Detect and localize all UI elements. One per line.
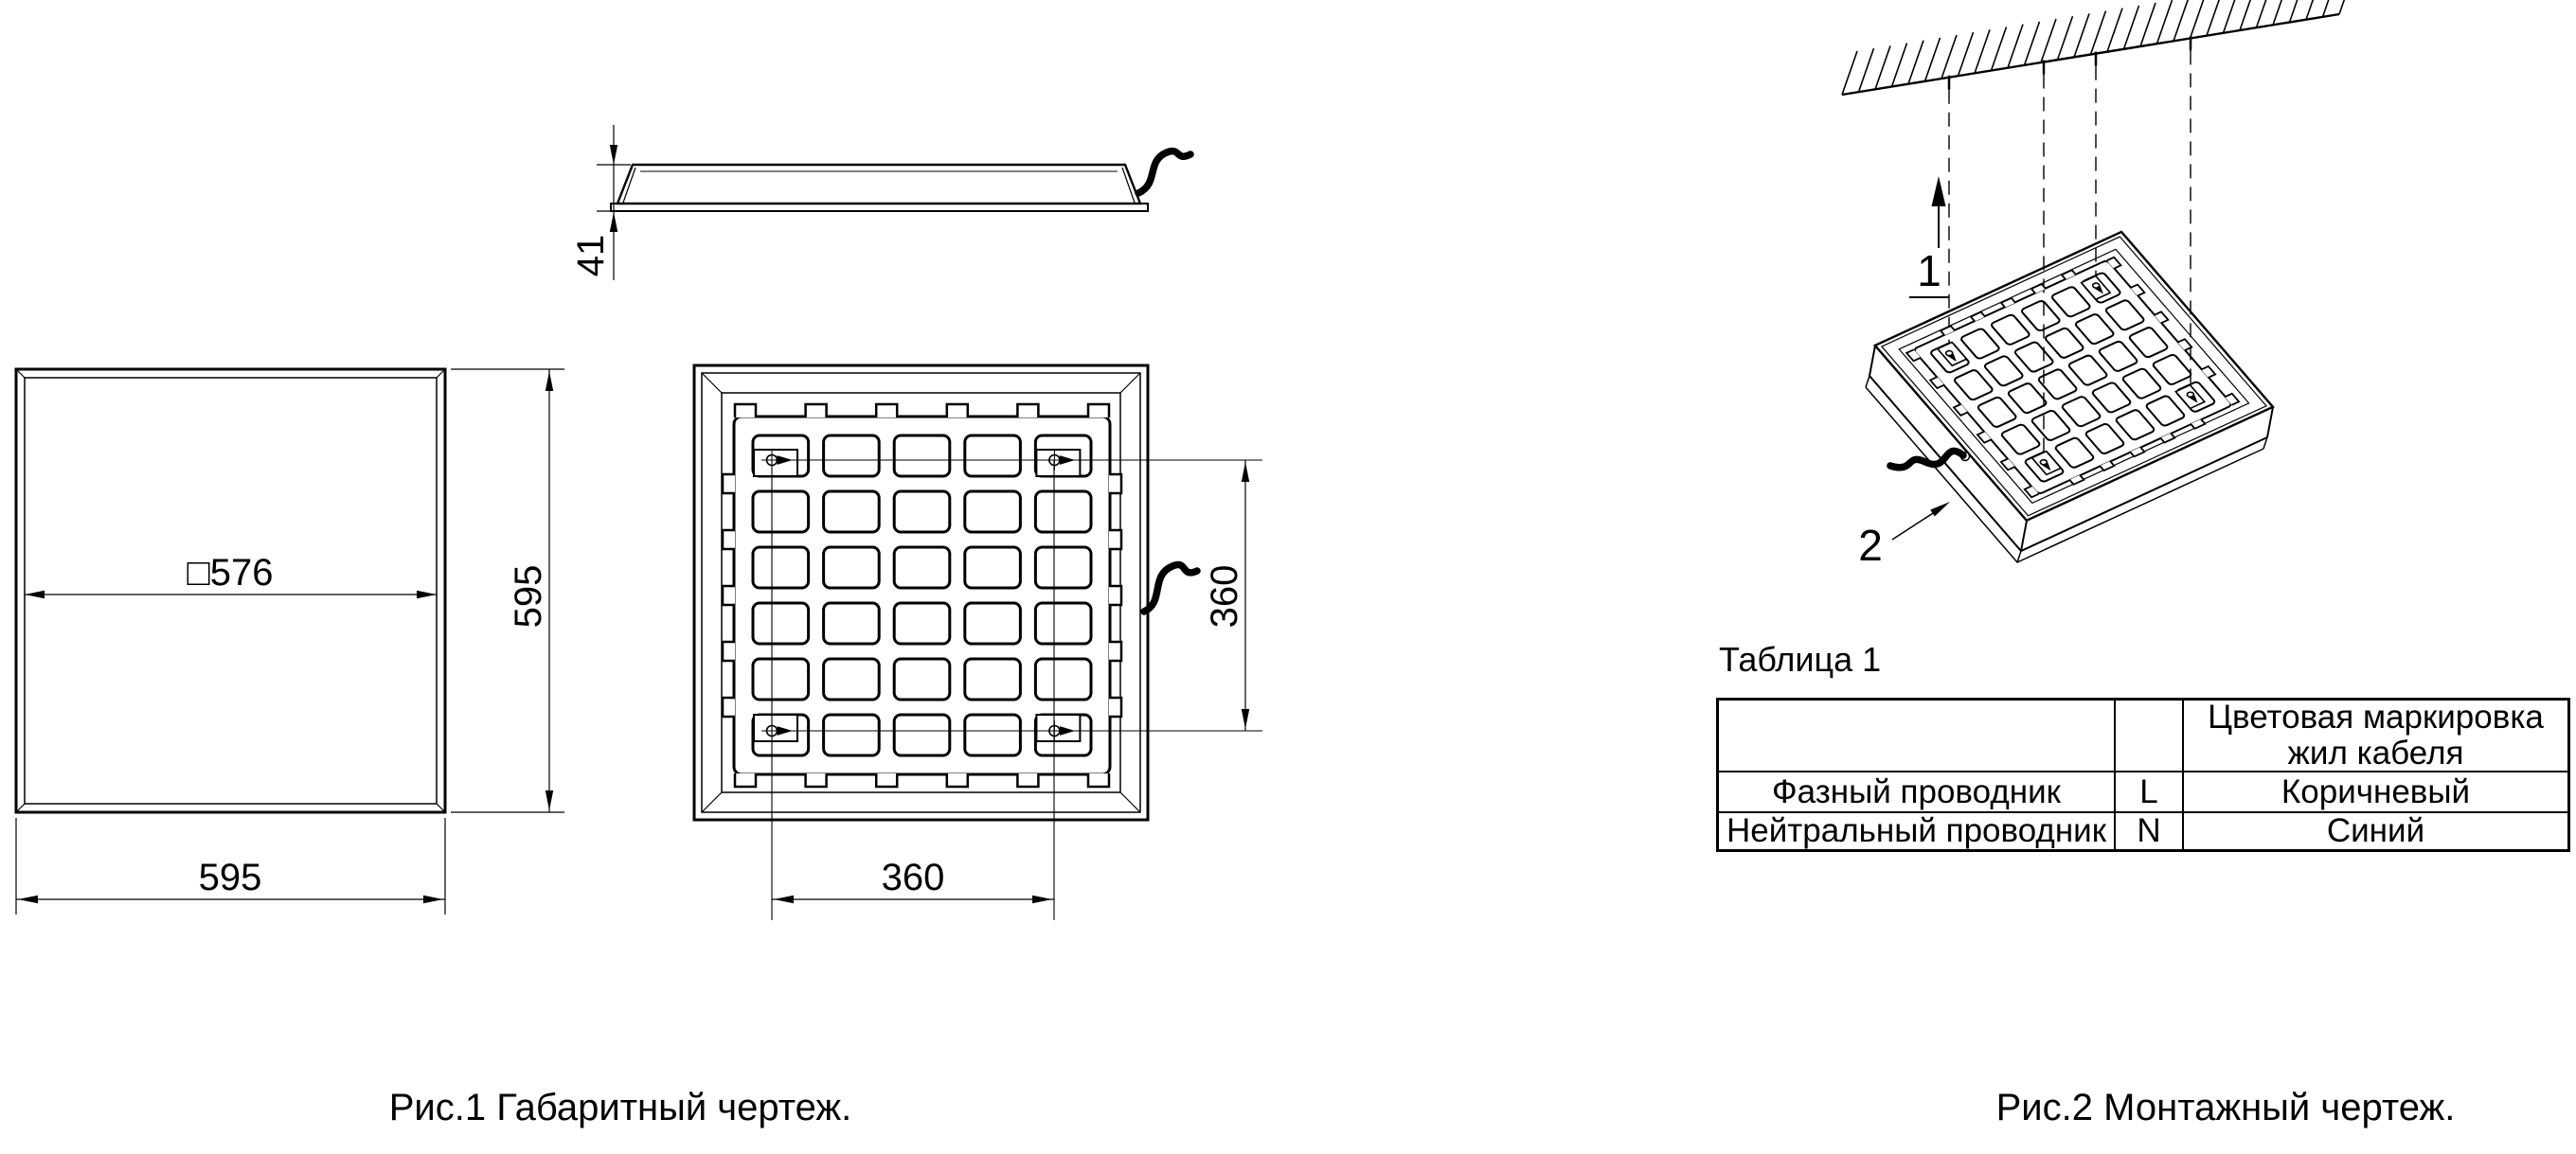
waffle-cell	[894, 435, 950, 476]
lattice-bump	[723, 586, 735, 605]
table-header-cell-blank	[2114, 701, 2182, 771]
hatch-line	[2290, 0, 2305, 23]
lattice-tab	[2177, 339, 2191, 350]
hatch-line	[1992, 27, 2007, 71]
waffle-cell	[2000, 424, 2041, 455]
lattice-tab	[1906, 349, 1921, 361]
hatch-line	[2173, 0, 2189, 41]
hatch-line	[2091, 11, 2106, 55]
waffle-cell	[2104, 299, 2145, 330]
waffle-cell	[1035, 603, 1091, 644]
dim-width-label: 595	[199, 857, 262, 898]
mounting-view: 1	[1842, 0, 2354, 570]
back-view: 360 360	[694, 365, 1262, 920]
lattice-tab	[735, 773, 756, 787]
hatch-line	[2339, 0, 2354, 14]
lattice-bump	[1109, 642, 1121, 661]
waffle-cell	[1977, 397, 2017, 428]
dim-mount-horizontal: 360	[772, 857, 1054, 903]
figure1-caption: Рис.1 Габаритный чертеж.	[389, 1087, 852, 1129]
hatch-line	[2041, 19, 2056, 62]
lattice-boundary	[1913, 260, 2232, 495]
waffle-cell	[965, 435, 1021, 476]
lattice-bump	[1109, 586, 1121, 605]
lattice-tab	[1017, 773, 1038, 787]
hatch-line	[2025, 22, 2040, 65]
table-cell-conductor: Фазный проводник	[1719, 771, 2114, 811]
lattice-bump	[723, 474, 735, 493]
hatch-line	[1908, 41, 1923, 84]
waffle-cell	[894, 547, 950, 588]
lattice-tab	[1017, 404, 1038, 417]
waffle-cell	[965, 715, 1021, 755]
waffle-cell	[1035, 547, 1091, 588]
waffle-cell	[2044, 328, 2084, 359]
table-header-cell-color: Цветовая маркировка жил кабеля	[2182, 701, 2567, 771]
lattice-bump	[2100, 461, 2114, 470]
lattice-tab	[2201, 366, 2215, 378]
waffle-cell	[824, 659, 880, 700]
callout-lift-label: 1	[1917, 246, 1941, 295]
waffle-cell	[824, 603, 880, 644]
lattice-bump	[2191, 419, 2205, 429]
lattice-bump	[2062, 270, 2076, 279]
lattice-tab	[1088, 773, 1109, 787]
waffle-cell	[2050, 286, 2091, 317]
lattice-tab	[806, 773, 827, 787]
table-cell-color: Синий	[2182, 811, 2567, 849]
hatch-line	[1859, 48, 1874, 92]
waffle-cell	[894, 715, 950, 755]
waffle-cell	[2098, 341, 2138, 372]
waffle-cell	[1035, 491, 1091, 532]
lattice-tab	[947, 404, 968, 417]
callout-cable: 2	[1858, 502, 1950, 570]
panel-thickness	[1866, 346, 2273, 562]
lattice-tab	[2001, 458, 2015, 470]
waffle-cell	[2152, 354, 2192, 385]
hatch-line	[2008, 25, 2023, 68]
waffle-cell	[2121, 368, 2162, 399]
profile-view: 41	[570, 125, 1190, 280]
power-cable-icon	[1890, 451, 1963, 467]
waffle-cell	[965, 547, 1021, 588]
waffle-cell	[2030, 410, 2071, 441]
waffle-cell	[2084, 423, 2125, 454]
hatch-line	[2124, 6, 2139, 49]
waffle-cell	[824, 491, 880, 532]
lattice-tab	[1088, 404, 1109, 417]
figure2-caption: Рис.2 Монтажный чертеж.	[1996, 1087, 2456, 1129]
wiring-table: Цветовая маркировка жил кабеля Фазный пр…	[1716, 698, 2570, 852]
waffle-cell	[2061, 396, 2102, 427]
front-view: □576 595 595	[16, 369, 564, 914]
waffle-cell	[2074, 313, 2115, 345]
table-cell-color: Коричневый	[2182, 771, 2567, 811]
lattice-bump	[2069, 475, 2084, 485]
waffle-cell	[894, 491, 950, 532]
table-cell-conductor: Нейтральный проводник	[1719, 811, 2114, 849]
lattice-tab	[1977, 432, 1992, 443]
dim-height-label: 595	[508, 565, 549, 629]
waffle-cell	[753, 491, 809, 532]
hatch-line	[1959, 32, 1974, 76]
lattice-bump	[2001, 298, 2015, 308]
waffle-cell	[1953, 369, 1994, 400]
waffle-cell	[2020, 300, 2061, 331]
dim-mount-h-label: 360	[882, 857, 945, 898]
dim-thickness-label: 41	[570, 235, 612, 277]
hatch-line	[2224, 0, 2239, 33]
waffle-grid	[723, 404, 1121, 787]
lattice-tab	[2025, 486, 2039, 497]
dim-mount-v-label: 360	[1204, 565, 1245, 629]
hatch-line	[1941, 35, 1957, 79]
power-cable-icon	[1138, 151, 1190, 193]
hatch-line	[2107, 9, 2122, 52]
hatch-line	[1925, 38, 1941, 81]
lattice-bump	[1971, 312, 1985, 322]
waffle-grid-isometric	[1903, 253, 2244, 503]
hatch-line	[2140, 3, 2156, 46]
lattice-bump	[1109, 530, 1121, 549]
waffle-cell	[2054, 437, 2095, 469]
table-header-cell-blank	[1719, 701, 2114, 771]
lattice-tab	[876, 404, 897, 417]
waffle-cell	[2007, 382, 2048, 414]
waffle-cell	[2067, 354, 2108, 385]
waffle-cell	[2128, 327, 2169, 358]
waffle-cell	[2013, 341, 2054, 372]
hatch-line	[1975, 29, 1990, 73]
waffle-cell	[824, 435, 880, 476]
lattice-tab	[2107, 257, 2121, 269]
table-title: Таблица 1	[1719, 640, 1881, 680]
dim-height: 595	[451, 369, 564, 812]
lattice-tab	[876, 773, 897, 787]
waffle-cell	[753, 659, 809, 700]
waffle-cell	[1035, 659, 1091, 700]
hatch-line	[2074, 13, 2089, 57]
waffle-cell	[965, 603, 1021, 644]
hatch-line	[2157, 0, 2173, 44]
lattice-tab	[947, 773, 968, 787]
hatch-line	[2058, 16, 2073, 60]
lattice-tab	[806, 404, 827, 417]
waffle-cell	[753, 547, 809, 588]
lattice-tab	[1930, 377, 1944, 388]
waffle-cell	[894, 659, 950, 700]
waffle-cell	[1990, 314, 2030, 346]
lattice-tab	[2130, 285, 2144, 296]
waffle-cell	[824, 547, 880, 588]
table-cell-terminal: L	[2114, 771, 2182, 811]
lattice-tab	[735, 404, 756, 417]
waffle-cell	[824, 715, 880, 755]
hatch-line	[1892, 44, 1907, 87]
technical-drawing: □576 595 595	[0, 0, 2576, 1154]
hatch-line	[1842, 51, 1857, 95]
lattice-bump	[1941, 326, 1955, 335]
waffle-cell	[2115, 409, 2156, 440]
hatch-line	[2191, 0, 2206, 39]
waffle-cell	[753, 603, 809, 644]
lattice-bump	[2160, 434, 2174, 443]
ceiling-hatch	[1842, 0, 2354, 95]
lattice-bump	[2130, 447, 2144, 456]
lattice-tab	[2154, 311, 2168, 323]
callout-cable-label: 2	[1858, 521, 1883, 570]
hatch-line	[2240, 0, 2255, 30]
waffle-cell	[1959, 328, 2000, 359]
hatch-line	[2257, 0, 2272, 27]
dim-width: 595	[16, 818, 445, 914]
waffle-cell	[1983, 355, 2024, 386]
lattice-bump	[723, 530, 735, 549]
table-cell-terminal: N	[2114, 811, 2182, 849]
hatch-line	[2207, 0, 2222, 36]
hatch-line	[2273, 0, 2288, 25]
lattice-tab	[1954, 404, 1968, 416]
hatch-line	[1875, 45, 1890, 89]
lattice-bump	[1109, 698, 1121, 717]
lattice-tab	[2225, 394, 2239, 405]
waffle-cell	[965, 491, 1021, 532]
lattice-bump	[1109, 474, 1121, 493]
power-cable-icon	[1144, 564, 1197, 612]
waffle-cell	[2091, 382, 2132, 413]
dim-inner-width-label: □576	[188, 552, 274, 594]
dim-mount-vertical: 360	[1204, 460, 1249, 731]
lattice-bump	[723, 698, 735, 717]
waffle-cell	[894, 603, 950, 644]
waffle-cell	[2145, 395, 2186, 426]
dim-inner-width: □576	[25, 552, 437, 598]
callout-lift: 1	[1909, 176, 1949, 297]
drawing-sheet: □576 595 595	[0, 0, 2576, 1154]
lattice-bump	[723, 642, 735, 661]
waffle-cell	[965, 659, 1021, 700]
